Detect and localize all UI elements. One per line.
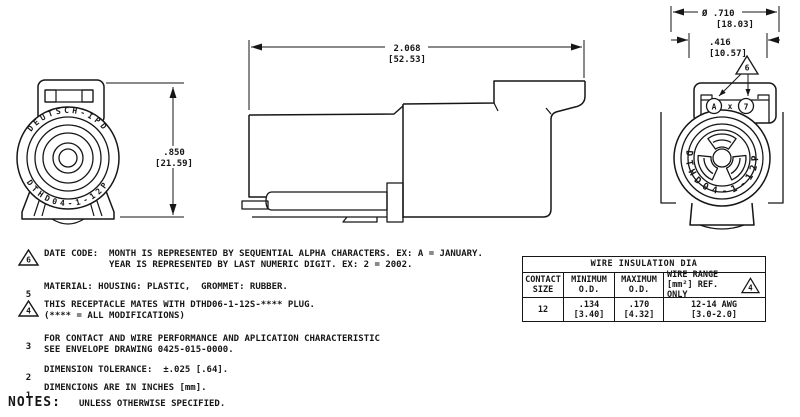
rear-view-bottom-flange <box>690 203 754 229</box>
rear-flag-note-6: 6 <box>719 56 758 96</box>
note-item-2: 2 DIMENSION TOLERANCE: ±.025 [.64]. <box>18 365 228 384</box>
cell-contact-size: 12 <box>523 298 564 321</box>
note-6-flag: 6 <box>18 249 39 266</box>
dim-length-mm: [52.53] <box>388 55 426 65</box>
front-view-rings <box>17 107 119 209</box>
table-header-row: CONTACTSIZE MINIMUMO.D. MAXIMUMO.D. WIRE… <box>523 273 765 298</box>
header-minimum-od: MINIMUMO.D. <box>564 273 615 297</box>
triangle-flag-icon: 4 <box>740 277 761 294</box>
note-text: DATE CODE: MONTH IS REPRESENTED BY SEQUE… <box>44 249 483 260</box>
svg-text:4: 4 <box>748 283 753 292</box>
wire-insulation-table: WIRE INSULATION DIA CONTACTSIZE MINIMUMO… <box>522 256 766 322</box>
engineering-drawing-sheet: DEUTSCH-IPD DTHD04-1-12P .850 [21.59] <box>0 0 800 417</box>
dim-dia-mm: [18.03] <box>716 20 754 30</box>
rear-view: DTHD04-1-12P A x 7 <box>661 83 783 229</box>
flag-number: 6 <box>745 64 750 73</box>
dim-width-mm: [10.57] <box>709 49 747 59</box>
dim-length-in: 2.068 <box>393 44 420 54</box>
note-item-5: 5 MATERIAL: HOUSING: PLASTIC, GROMMET: R… <box>18 282 288 301</box>
header-wire-range: WIRE RANGE[mm²] REF. ONLY 4 <box>664 273 764 297</box>
dim-dia-in: Ø .710 <box>701 8 735 19</box>
note-text: MATERIAL: HOUSING: PLASTIC, GROMMET: RUB… <box>44 282 288 293</box>
drawing-views: DEUTSCH-IPD DTHD04-1-12P .850 [21.59] <box>0 0 800 245</box>
note-text: (**** = ALL MODIFICATIONS) <box>44 311 315 322</box>
notes-condition: UNLESS OTHERWISE SPECIFIED. <box>79 399 225 409</box>
note-text: FOR CONTACT AND WIRE PERFORMANCE AND APL… <box>44 334 380 345</box>
date-code-separator: x <box>728 102 733 111</box>
note-text: DIMENCIONS ARE IN INCHES [mm]. <box>44 383 207 394</box>
rear-width-dimension: .416 [10.57] <box>671 33 780 59</box>
table-data-row: 12 .134[3.40] .170[4.32] 12-14 AWG[3.0-2… <box>523 298 765 321</box>
triangle-flag-icon: 6 <box>18 249 39 266</box>
note-item-3: 3 FOR CONTACT AND WIRE PERFORMANCE AND A… <box>18 334 380 355</box>
cell-maximum-od: .170[4.32] <box>615 298 664 321</box>
notes-label: NOTES: <box>8 395 61 410</box>
note-number: 3 <box>18 342 39 353</box>
note-text: DIMENSION TOLERANCE: ±.025 [.64]. <box>44 365 228 376</box>
date-code-year: 7 <box>744 103 749 112</box>
note-item-6: 6 DATE CODE: MONTH IS REPRESENTED BY SEQ… <box>18 249 483 270</box>
notes-header: NOTES: UNLESS OTHERWISE SPECIFIED. <box>8 395 225 410</box>
cell-minimum-od: .134[3.40] <box>564 298 615 321</box>
note-text: YEAR IS REPRESENTED BY LAST NUMERIC DIGI… <box>44 260 483 271</box>
header-maximum-od: MAXIMUMO.D. <box>615 273 664 297</box>
note-text: SEE ENVELOPE DRAWING 0425-015-0000. <box>44 345 380 356</box>
side-view <box>242 81 585 222</box>
note-4-flag: 4 <box>18 300 39 317</box>
note-item-4: 4 THIS RECEPTACLE MATES WITH DTHD06-1-12… <box>18 300 315 321</box>
note-text: THIS RECEPTACLE MATES WITH DTHD06-1-12S-… <box>44 300 315 311</box>
triangle-flag-icon: 4 <box>18 300 39 317</box>
svg-text:6: 6 <box>26 256 31 265</box>
header-contact-size: CONTACTSIZE <box>523 273 564 297</box>
date-code-month: A <box>712 103 717 112</box>
dim-height-in: .850 <box>163 148 185 158</box>
side-length-dimension: 2.068 [52.53] <box>249 40 584 110</box>
dim-width-in: .416 <box>709 38 731 48</box>
dim-height-mm: [21.59] <box>155 159 193 169</box>
rear-diameter-dimension: Ø .710 [18.03] <box>671 6 779 32</box>
svg-text:4: 4 <box>26 307 31 316</box>
side-view-latch <box>242 183 403 222</box>
cell-wire-range: 12-14 AWG[3.0-2.0] <box>664 298 764 321</box>
front-view: DEUTSCH-IPD DTHD04-1-12P <box>17 80 119 224</box>
